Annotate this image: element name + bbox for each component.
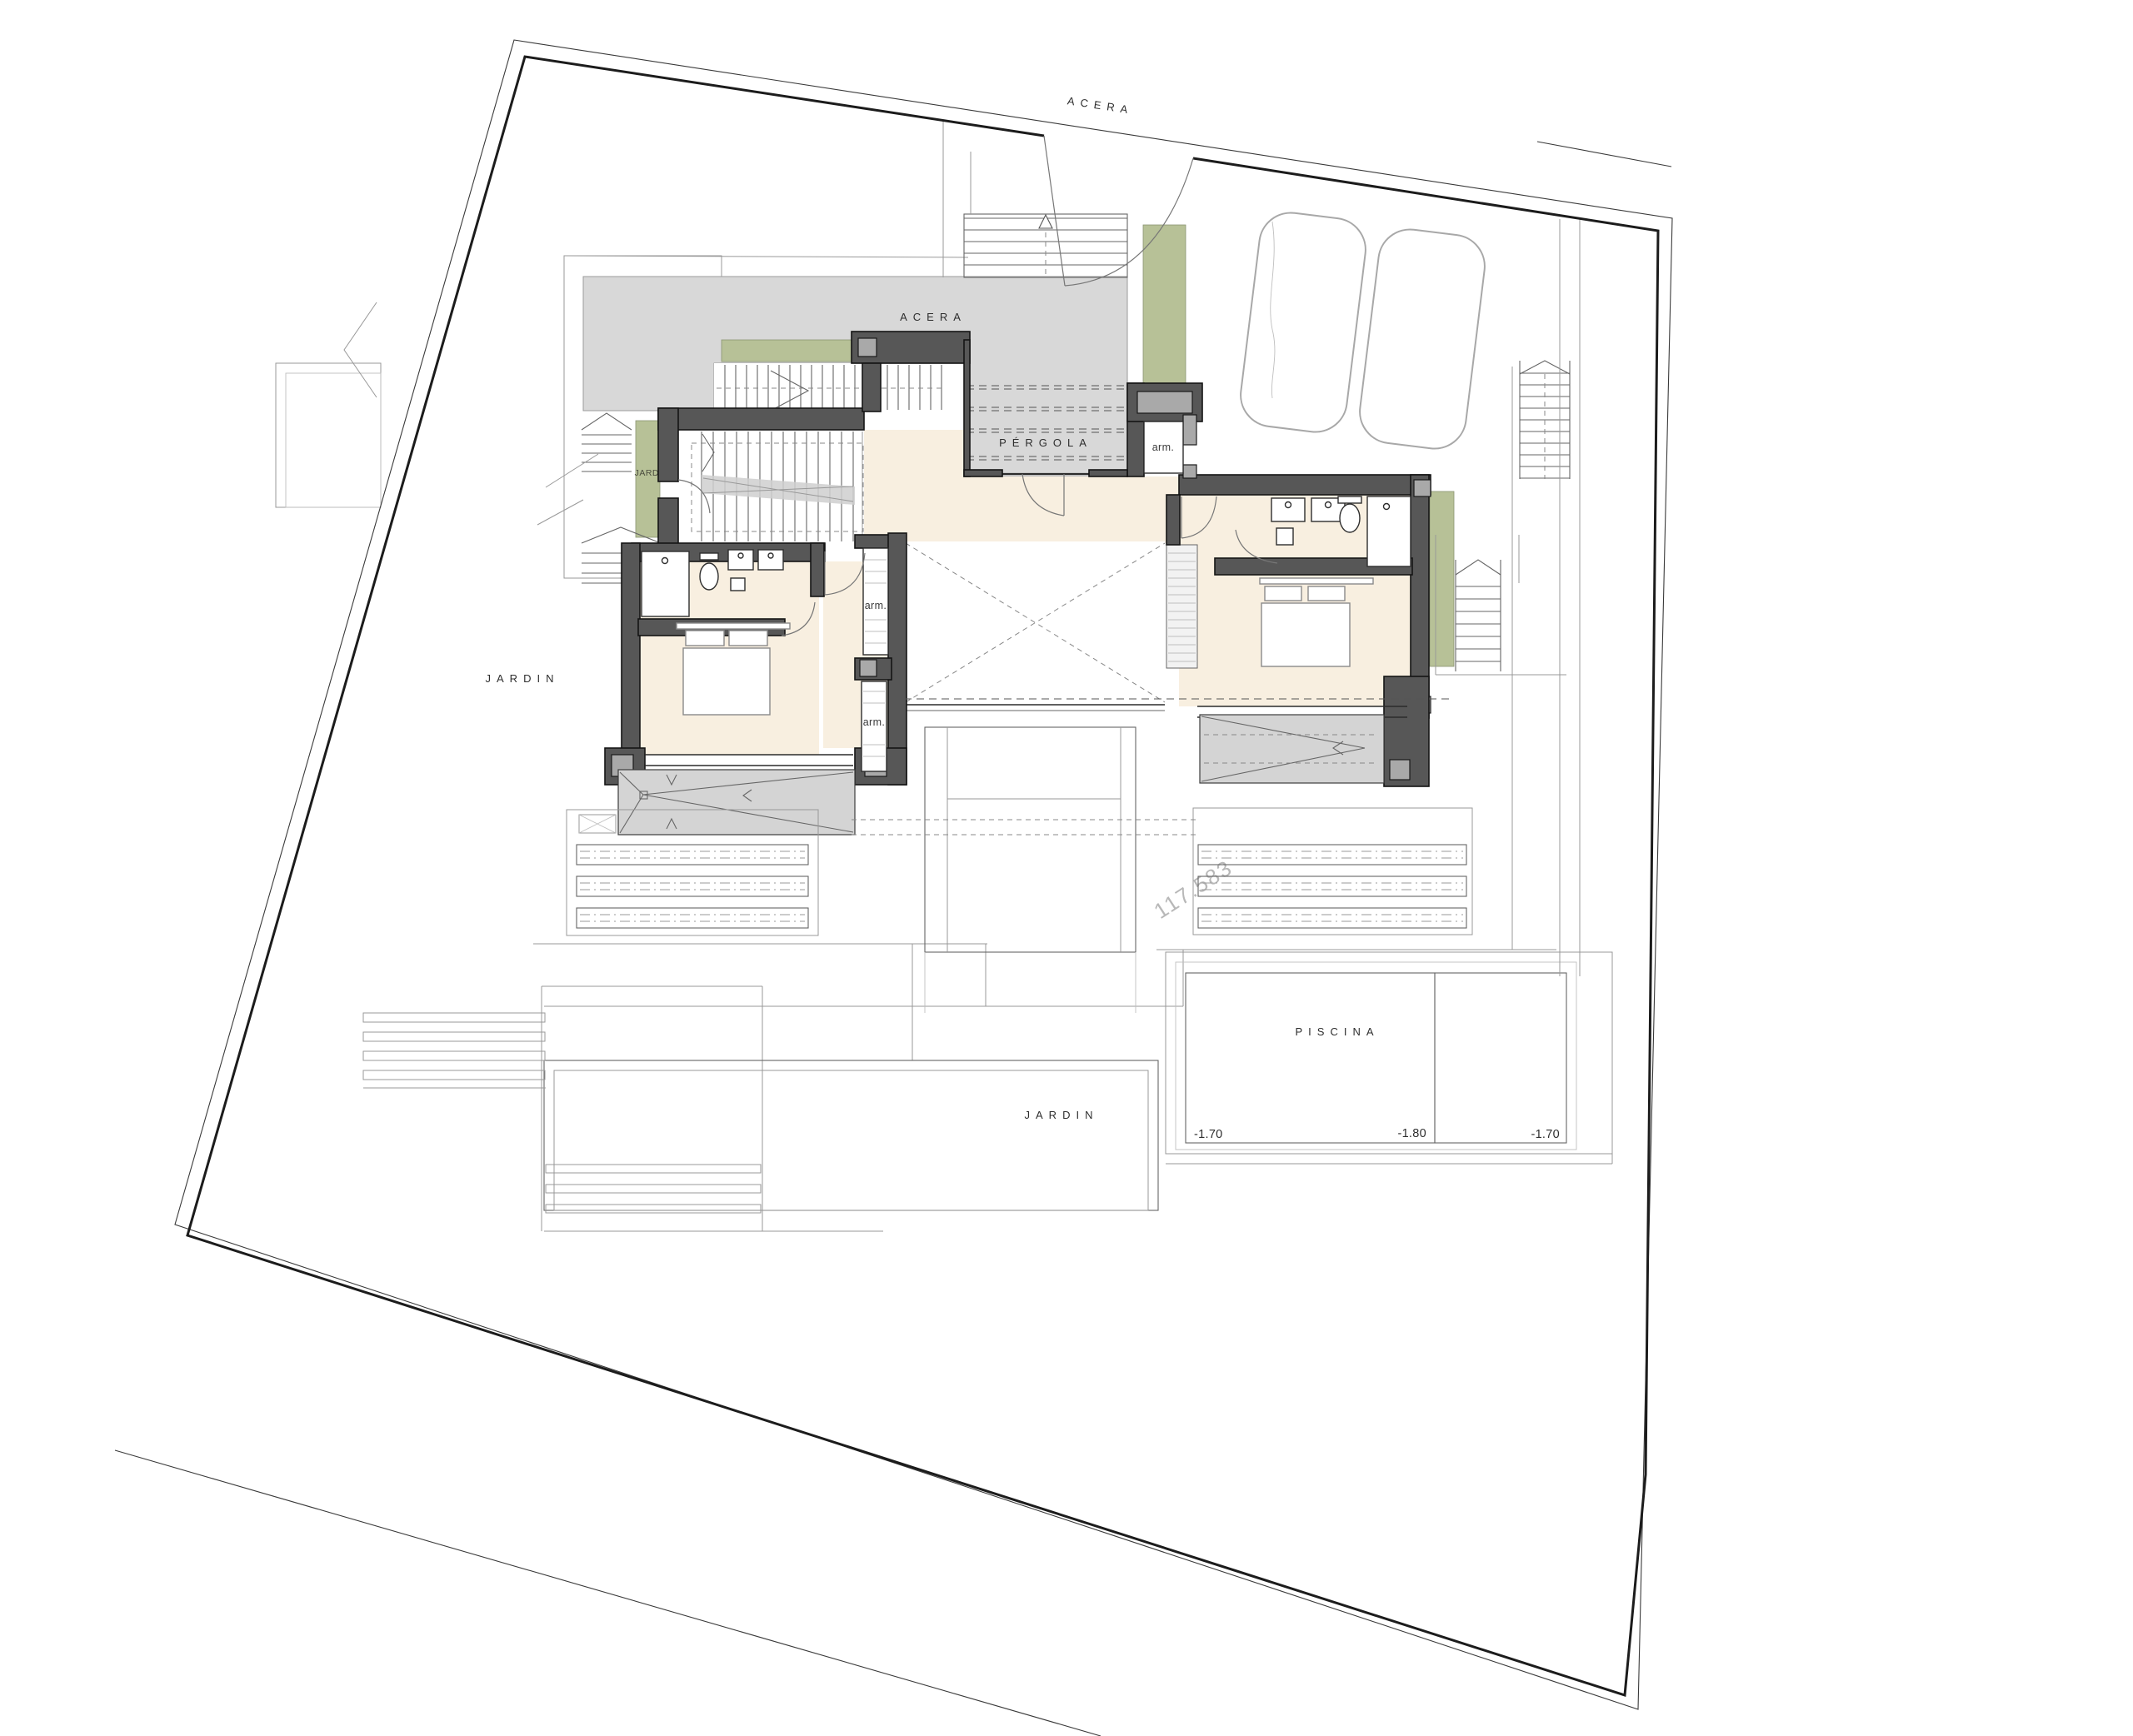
toilet-tank xyxy=(1338,496,1361,503)
headboard-west xyxy=(677,623,790,629)
garden-steps-upper xyxy=(363,1013,546,1088)
pool-depth-right: -1.70 xyxy=(1531,1128,1560,1141)
toilet-tank xyxy=(700,553,718,560)
faucet-icon xyxy=(768,553,773,558)
jardin-west-label: JARDIN xyxy=(486,672,560,685)
planter-hedge-top xyxy=(722,340,857,362)
shelf-west xyxy=(731,578,745,591)
pillow-icon xyxy=(686,631,724,646)
faucet-icon xyxy=(662,558,668,564)
louvre-screen xyxy=(1166,545,1197,668)
arm-closet-1-label: arm. xyxy=(865,600,887,611)
faucet-icon xyxy=(738,553,743,558)
headboard-east xyxy=(1260,578,1373,584)
street-label: ACERA xyxy=(1066,94,1134,117)
car-outline-1 xyxy=(1237,209,1369,436)
toilet-east xyxy=(1340,504,1360,532)
jardin-south-label: JARDIN xyxy=(1025,1109,1099,1121)
garden-labels: JARDIN xyxy=(486,672,560,685)
pillow-icon xyxy=(1265,586,1301,601)
bed-east xyxy=(1261,603,1350,666)
central-lightwell xyxy=(925,727,1136,1013)
void-above-living xyxy=(906,541,1197,711)
toilet-west xyxy=(700,563,718,590)
plan-canvas: JARDIN 117.583 PISCINA -1.70 -1.80 -1.70… xyxy=(0,0,2133,1736)
garden-steps-lower xyxy=(546,1165,761,1213)
faucet-icon xyxy=(1286,502,1291,508)
planter-east-bedroom xyxy=(1430,491,1454,666)
pool-depth-center: -1.80 xyxy=(1397,1127,1426,1140)
up-arrow-icon xyxy=(1039,215,1052,228)
parking xyxy=(1237,209,1488,452)
planter-jard xyxy=(636,421,660,537)
lower-terraces: JARDIN 117.583 xyxy=(363,855,1556,1231)
bed-west xyxy=(683,648,770,715)
planter-east-of-steps xyxy=(1143,225,1186,400)
floor-plan-page: { "drawing": { "type": "architectural-si… xyxy=(0,0,2133,1736)
sidewalk-label: ACERA xyxy=(900,311,967,323)
arm-entry-label: arm. xyxy=(1152,441,1175,453)
arm-closet-2-label: arm. xyxy=(863,716,886,728)
car-outline-2 xyxy=(1356,226,1488,452)
louver-east xyxy=(1198,845,1466,928)
pillow-icon xyxy=(729,631,767,646)
louver-west xyxy=(577,845,808,928)
faucet-icon xyxy=(1326,502,1331,508)
pool-depth-left: -1.70 xyxy=(1194,1128,1223,1141)
piscina-label: PISCINA xyxy=(1295,1025,1379,1038)
terrain-line xyxy=(1271,222,1275,398)
pergola-label: PÉRGOLA xyxy=(999,436,1092,449)
pillow-icon xyxy=(1308,586,1345,601)
shelf-east xyxy=(1276,528,1293,545)
pool-area: PISCINA -1.70 -1.80 -1.70 xyxy=(1166,952,1612,1164)
faucet-icon xyxy=(1384,504,1390,510)
